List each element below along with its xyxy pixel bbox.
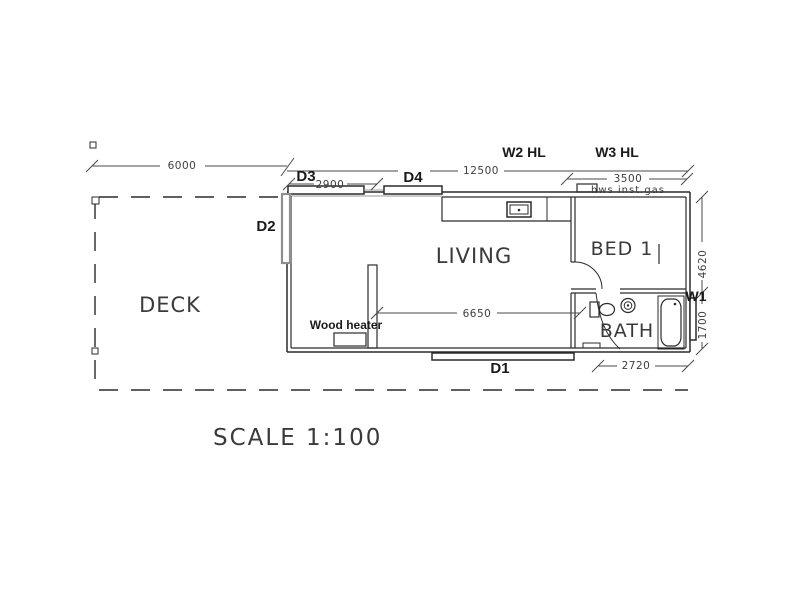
bath-threshold bbox=[583, 343, 600, 348]
wood-heater-label: Wood heater bbox=[310, 318, 383, 332]
room-label-bath: BATH bbox=[600, 320, 654, 342]
room-label-bed1: BED 1 bbox=[591, 238, 654, 260]
dim-bed-wall: 3500 bbox=[614, 173, 643, 185]
dim-d3-opening: 2900 bbox=[316, 179, 345, 191]
living-stub-wall bbox=[368, 265, 377, 348]
dim-building-length: 12500 bbox=[463, 165, 499, 177]
door-d2-label: D2 bbox=[256, 218, 275, 235]
deck-corner-marker bbox=[92, 197, 99, 204]
door-d4-panel bbox=[384, 186, 442, 194]
door-d1-label: D1 bbox=[490, 360, 509, 377]
toilet-bowl bbox=[600, 304, 615, 316]
door-d2-panel bbox=[282, 194, 290, 263]
room-label-deck: DECK bbox=[139, 293, 201, 317]
window-w1-label: W1 bbox=[686, 288, 707, 304]
hws-label: hws inst.gas bbox=[591, 185, 665, 196]
dim-tick bbox=[281, 158, 294, 176]
bed-door-swing-arc bbox=[575, 262, 602, 289]
sink-drain-dot bbox=[518, 209, 521, 212]
door-d1-panel bbox=[432, 353, 574, 360]
floor-plan-sheet: 6000 12500 2900 3500 6650 2720 4620 1700… bbox=[0, 0, 800, 600]
door-d3-label: D3 bbox=[296, 168, 315, 185]
room-label-living: LIVING bbox=[436, 244, 512, 268]
deck-edge-marker bbox=[92, 348, 98, 354]
dim-deck-length: 6000 bbox=[168, 160, 197, 172]
door-d4-label: D4 bbox=[403, 169, 423, 186]
dim-living-width: 6650 bbox=[463, 308, 492, 320]
dim-bath-width: 2720 bbox=[622, 360, 651, 372]
window-w2-label: W2 HL bbox=[502, 144, 546, 160]
bathtub bbox=[661, 299, 681, 346]
window-w1-panel bbox=[690, 298, 696, 340]
dim-lower-depth: 1700 bbox=[697, 311, 709, 340]
floor-plan-drawing: 6000 12500 2900 3500 6650 2720 4620 1700… bbox=[0, 0, 800, 600]
wood-heater-box bbox=[334, 333, 366, 346]
survey-marker-top bbox=[90, 142, 96, 148]
window-w3-label: W3 HL bbox=[595, 144, 639, 160]
shower-drain-dot bbox=[627, 304, 629, 306]
scale-note: SCALE 1:100 bbox=[213, 425, 382, 451]
dim-upper-depth: 4620 bbox=[697, 250, 709, 279]
bathtub-tap-dot bbox=[674, 303, 677, 306]
